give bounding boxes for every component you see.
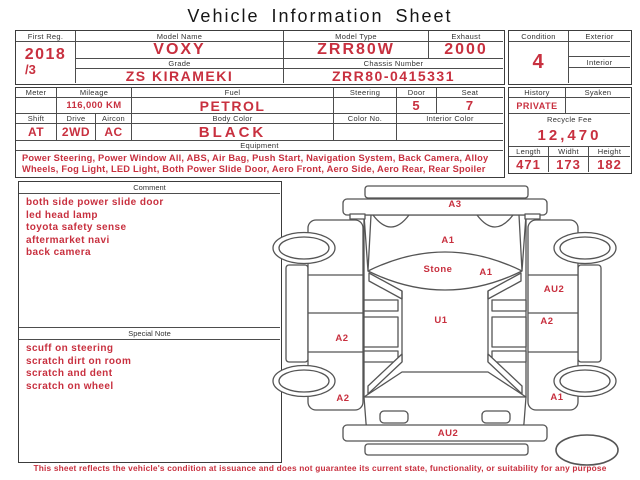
seat-value: 7 (437, 98, 503, 114)
history-label: History (509, 88, 566, 98)
shift-value: AT (16, 124, 57, 141)
interior-label: Interior (569, 57, 630, 68)
height-value: 182 (589, 157, 630, 172)
special-note-item: scuff on steering (26, 343, 273, 356)
fuel-label: Fuel (132, 88, 334, 98)
comment-box: Comment both side power slide door led h… (18, 181, 282, 463)
comment-list: both side power slide door led head lamp… (19, 194, 280, 327)
model-type-value: ZRR80W (284, 42, 429, 59)
comment-item: led head lamp (26, 210, 273, 223)
width-label: Widht (549, 147, 589, 157)
shift-label: Shift (16, 114, 57, 124)
condition-label: Condition (509, 31, 569, 42)
page-title: Vehicle Information Sheet (0, 6, 640, 27)
door-label: Door (397, 88, 437, 98)
diagram-label: A2 (336, 393, 349, 404)
special-note-item: scratch and dent (26, 368, 273, 381)
interior-color-value (397, 124, 503, 141)
width-value: 173 (549, 157, 589, 172)
color-no-label: Color No. (334, 114, 397, 124)
comment-item: aftermarket navi (26, 235, 273, 248)
history-value: PRIVATE (509, 98, 566, 114)
diagram-label: AU2 (544, 284, 565, 295)
meter-value (16, 98, 57, 114)
fuel-value: PETROL (132, 98, 334, 114)
grade-label: Grade (76, 59, 284, 69)
vehicle-diagram: A3A1StoneA1AU2U1A2A2A2A1AU2 (270, 183, 640, 478)
color-no-value (334, 124, 397, 141)
diagram-label: A1 (441, 235, 454, 246)
grade-value: ZS KIRAMEKI (76, 69, 284, 83)
right-rocker-panel (578, 265, 601, 362)
front-bumper-bar (343, 199, 547, 215)
chassis-number-label: Chassis Number (284, 59, 503, 69)
first-reg-year: 2018 (25, 47, 67, 63)
body-color-value: BLACK (132, 124, 334, 141)
history-box: History PRIVATE Syaken Recycle Fee 12,47… (508, 87, 632, 174)
comment-header: Comment (19, 182, 280, 194)
drive-value: 2WD (57, 124, 96, 141)
syaken-value (566, 98, 630, 114)
special-note-item: scratch dirt on room (26, 356, 273, 369)
diagram-label: A2 (540, 316, 553, 327)
interior-value (569, 68, 630, 83)
model-type-label: Model Type (284, 31, 429, 42)
equipment-value: Power Steering, Power Window All, ABS, A… (16, 151, 503, 176)
model-name-value: VOXY (76, 42, 284, 59)
exhaust-label: Exhaust (429, 31, 503, 42)
chassis-number-value: ZRR80-0415331 (284, 69, 503, 83)
registration-table: First Reg. 2018 /3 Model Name VOXY Grade… (15, 30, 505, 85)
disclaimer-text: This sheet reflects the vehicle's condit… (0, 463, 640, 473)
comment-item: both side power slide door (26, 197, 273, 210)
height-label: Height (589, 147, 630, 157)
diagram-label: A1 (550, 392, 563, 403)
meter-label: Meter (16, 88, 57, 98)
comment-item: toyota safety sense (26, 222, 273, 235)
aircon-label: Aircon (96, 114, 132, 124)
special-note-item: scratch on wheel (26, 381, 273, 394)
mileage-value: 116,000 KM (57, 98, 132, 114)
spare-wheel (556, 435, 618, 465)
diagram-label: A1 (479, 267, 492, 278)
diagram-label: U1 (434, 315, 447, 326)
door-value: 5 (397, 98, 437, 114)
exterior-label: Exterior (569, 31, 630, 42)
condition-value: 4 (509, 42, 569, 83)
vehicle-information-sheet: Vehicle Information Sheet First Reg. 201… (0, 0, 640, 480)
left-rocker-panel (286, 265, 308, 362)
first-reg-label: First Reg. (16, 31, 76, 42)
diagram-label: Stone (424, 264, 453, 275)
comment-item: back camera (26, 247, 273, 260)
diagram-label: A3 (448, 199, 461, 210)
length-value: 471 (509, 157, 549, 172)
mileage-label: Mileage (57, 88, 132, 98)
spec-table: Meter Mileage 116,000 KM Fuel PETROL Ste… (15, 87, 505, 178)
rear-lower-bar (365, 444, 528, 455)
drive-label: Drive (57, 114, 96, 124)
body-color-label: Body Color (132, 114, 334, 124)
exhaust-value: 2000 (429, 42, 503, 59)
special-note-list: scuff on steering scratch dirt on room s… (19, 340, 280, 461)
diagram-label: A2 (335, 333, 348, 344)
recycle-fee-value: 12,470 (509, 124, 630, 147)
diagram-label: AU2 (438, 428, 459, 439)
condition-box: Condition 4 Exterior Interior (508, 30, 632, 85)
first-reg-month: /3 (25, 63, 36, 77)
exterior-value (569, 42, 630, 57)
seat-label: Seat (437, 88, 503, 98)
first-reg-value: 2018 /3 (16, 42, 76, 83)
aircon-value: AC (96, 124, 132, 141)
interior-color-label: Interior Color (397, 114, 503, 124)
steering-value (334, 98, 397, 114)
special-note-header: Special Note (19, 327, 280, 340)
syaken-label: Syaken (566, 88, 630, 98)
recycle-fee-label: Recycle Fee (509, 114, 630, 124)
model-name-label: Model Name (76, 31, 284, 42)
steering-label: Steering (334, 88, 397, 98)
equipment-label: Equipment (16, 141, 503, 151)
length-label: Length (509, 147, 549, 157)
front-upper-bar (365, 186, 528, 198)
